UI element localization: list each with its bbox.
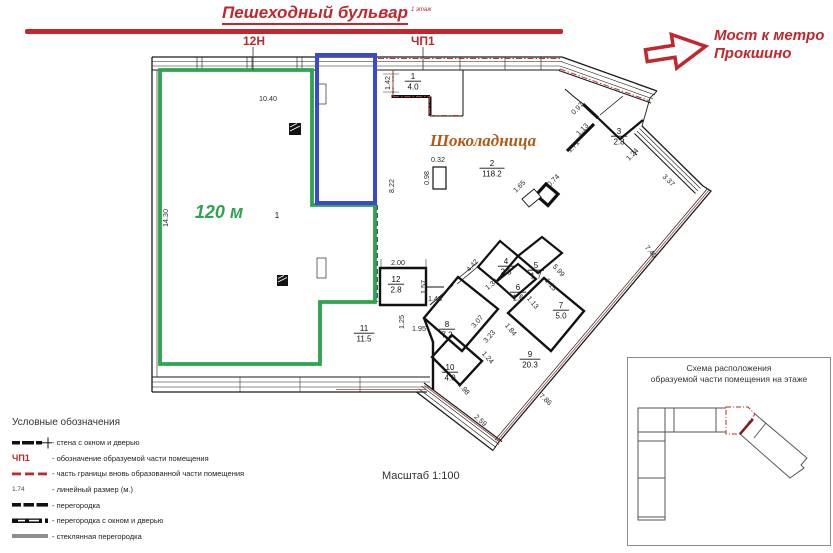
room-area: 4.0 bbox=[444, 374, 456, 383]
dimension-label: 1.48 bbox=[428, 294, 442, 303]
dimension-label: 2.59 bbox=[472, 412, 488, 428]
dimension-label: 10.40 bbox=[259, 94, 277, 103]
legend-symbol-linear-size: 1.74 bbox=[12, 486, 52, 493]
room-number: 2 bbox=[490, 159, 495, 168]
room-area: 1.7 bbox=[530, 272, 542, 281]
dimension-label: 7.40 bbox=[643, 243, 659, 260]
dimension-label: 1.13 bbox=[525, 294, 541, 311]
room-number: 4 bbox=[504, 257, 509, 266]
legend: Условные обозначения - стена с окном и д… bbox=[12, 417, 312, 544]
legend-item-label: - стеклянная перегородка bbox=[52, 532, 142, 541]
room-number: 1 bbox=[275, 211, 280, 220]
legend-item: - часть границы вновь образованной части… bbox=[12, 466, 312, 482]
legend-symbol-partition bbox=[12, 499, 52, 511]
room-area: 118.2 bbox=[482, 170, 502, 179]
legend-item-label: - обозначение образуемой части помещения bbox=[52, 454, 209, 463]
highlight-green-outline[interactable] bbox=[160, 70, 375, 364]
room-number: 10 bbox=[446, 363, 455, 372]
room-number: 11 bbox=[360, 324, 369, 333]
room-label: 75.0 bbox=[553, 301, 569, 321]
legend-symbol-chp-mark: ЧП1 bbox=[12, 453, 52, 463]
dimension-label: 0.98 bbox=[422, 171, 431, 185]
legend-item: ЧП1- обозначение образуемой части помеще… bbox=[12, 451, 312, 467]
room-area: 2.8 bbox=[613, 138, 625, 147]
room-label: 1111.5 bbox=[354, 324, 375, 344]
room-label: 14.0 bbox=[405, 72, 421, 92]
columns-and-fittings bbox=[277, 84, 446, 286]
legend-item-label: - перегородка с окном и дверью bbox=[52, 516, 163, 525]
legend-item: - перегородка с окном и дверью bbox=[12, 513, 312, 529]
room-label: 920.3 bbox=[520, 350, 541, 370]
legend-symbol-wall-window-door bbox=[12, 437, 52, 449]
room-number: 7 bbox=[559, 301, 564, 310]
dimension-label: 1.25 bbox=[397, 315, 406, 329]
dimension-label: 2.00 bbox=[391, 258, 405, 267]
legend-item: 1.74- линейный размер (м.) bbox=[12, 482, 312, 498]
dimension-label: 1.42 bbox=[383, 76, 392, 90]
location-inset: Схема расположения образуемой части поме… bbox=[627, 357, 831, 546]
dimension-label: 3.23 bbox=[481, 328, 497, 344]
legend-rows: - стена с окном и дверьюЧП1- обозначение… bbox=[12, 435, 312, 544]
dimension-label: 0.97 bbox=[569, 100, 585, 116]
dimension-label: 5.99 bbox=[551, 262, 567, 278]
dimension-label: 1.95 bbox=[412, 324, 426, 333]
dimension-label: 1.24 bbox=[624, 146, 640, 162]
legend-symbol-partition-window-door bbox=[12, 515, 52, 527]
room-area: 11.5 bbox=[357, 335, 373, 344]
dimension-label: 14.30 bbox=[161, 209, 170, 227]
room-area: 5.0 bbox=[555, 312, 567, 321]
room-label: 1 bbox=[275, 211, 280, 220]
dimension-label: 0.32 bbox=[431, 155, 445, 164]
highlight-blue-outline[interactable] bbox=[317, 55, 375, 203]
legend-item-label: - перегородка bbox=[52, 501, 100, 510]
legend-item: - стена с окном и дверью bbox=[12, 435, 312, 451]
dimension-label: 1.57 bbox=[419, 280, 428, 294]
legend-item-label: - стена с окном и дверью bbox=[52, 438, 140, 447]
room-label: 61.6 bbox=[510, 283, 526, 303]
room-number: 1 bbox=[411, 72, 416, 81]
room-area: 1.6 bbox=[512, 294, 524, 303]
room-labels: 114.02118.232.842.851.761.675.087.2920.3… bbox=[275, 72, 627, 383]
highlight-area-label: 120 м bbox=[195, 202, 243, 222]
dimension-label: 1.84 bbox=[503, 321, 519, 338]
room-area: 20.3 bbox=[522, 361, 538, 370]
dimension-ticks bbox=[253, 47, 426, 271]
legend-symbol-glass-partition bbox=[12, 530, 52, 542]
dimension-label: 1.65 bbox=[511, 178, 527, 194]
room-area: 4.0 bbox=[407, 83, 419, 92]
room-area: 2.8 bbox=[500, 268, 512, 277]
legend-title: Условные обозначения bbox=[12, 417, 312, 428]
room-area: 7.2 bbox=[441, 331, 453, 340]
brand-label: Шоколадница bbox=[429, 131, 537, 150]
legend-item: - стеклянная перегородка bbox=[12, 529, 312, 545]
room-area: 2.8 bbox=[390, 286, 402, 295]
legend-item: - перегородка bbox=[12, 497, 312, 513]
dimension-label: 8.22 bbox=[387, 179, 396, 193]
floor-plan-page: Пешеходный бульвар1 этаж 12Н ЧП1 Мост к … bbox=[0, 0, 833, 553]
room-number: 6 bbox=[516, 283, 521, 292]
dimension-label: 3.37 bbox=[661, 172, 677, 188]
dimension-labels: 10.4014.301.428.220.320.980.971.131.711.… bbox=[161, 76, 677, 428]
legend-item-label: - линейный размер (м.) bbox=[52, 485, 133, 494]
room-number: 9 bbox=[528, 350, 533, 359]
room-number: 8 bbox=[445, 320, 450, 329]
legend-symbol-red-dashed bbox=[12, 468, 52, 480]
dimension-label: 1.13 bbox=[574, 121, 590, 137]
legend-item-label: - часть границы вновь образованной части… bbox=[52, 469, 244, 478]
dimension-label: 1.24 bbox=[480, 349, 496, 365]
room-number: 5 bbox=[534, 261, 539, 270]
room-label: 122.8 bbox=[388, 275, 404, 295]
room-label: 2118.2 bbox=[480, 159, 505, 179]
inset-minimap bbox=[628, 358, 830, 545]
dimension-label: 1.34 bbox=[483, 276, 500, 292]
room-label: 42.8 bbox=[498, 257, 514, 277]
interior-partitions bbox=[380, 70, 643, 390]
scale-label: Масштаб 1:100 bbox=[382, 470, 460, 482]
room-number: 12 bbox=[392, 275, 401, 284]
room-number: 3 bbox=[617, 127, 622, 136]
